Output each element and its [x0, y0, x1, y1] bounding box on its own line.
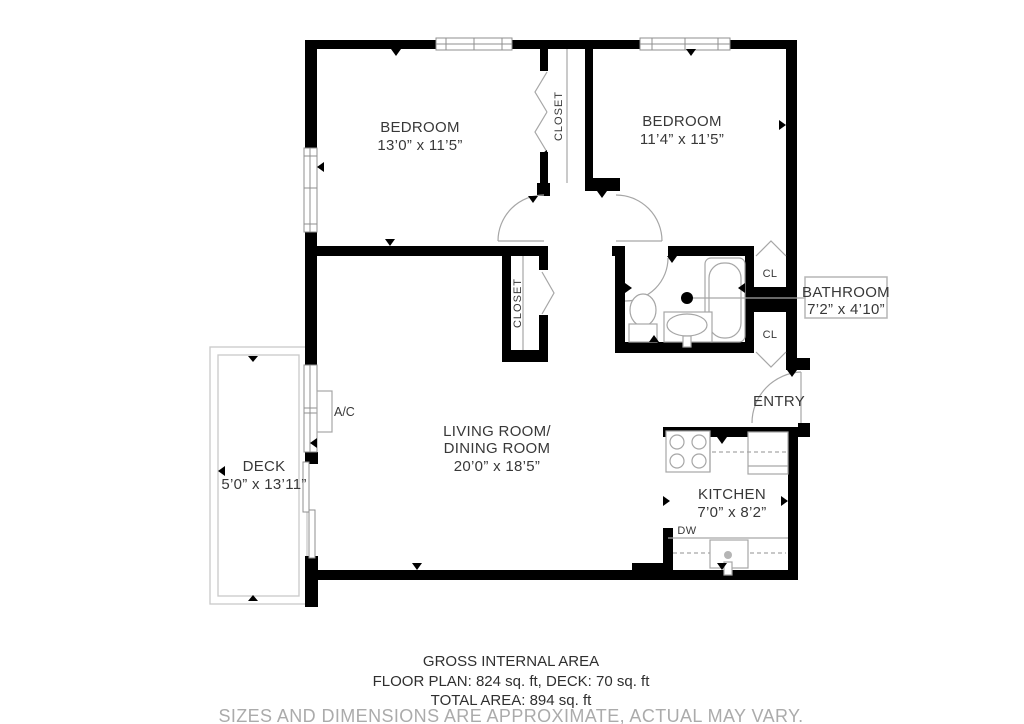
dishwasher-label: DW	[677, 525, 696, 537]
footer-areas: FLOOR PLAN: 824 sq. ft, DECK: 70 sq. ft	[373, 673, 651, 690]
wall-segment	[502, 256, 511, 362]
wall-segment	[585, 178, 620, 191]
bifold-door-icon	[756, 241, 786, 256]
bifold-door-icon	[535, 72, 547, 112]
wall-segment	[788, 427, 798, 580]
kitchen-sink-icon	[710, 540, 748, 575]
wall-marker	[248, 356, 258, 362]
wall-segment	[632, 563, 663, 575]
footer: GROSS INTERNAL AREA FLOOR PLAN: 824 sq. …	[218, 653, 803, 724]
kitchen-name-label: KITCHEN	[698, 486, 766, 503]
door-swing-icon	[616, 195, 662, 241]
wall-segment	[748, 287, 789, 312]
floor-plan-drawing: BEDROOM 13’0” x 11’5” BEDROOM 11’4” x 11…	[0, 0, 1024, 724]
entry-label: ENTRY	[753, 393, 805, 410]
toilet-icon	[629, 294, 657, 342]
cl-top-label: CL	[763, 268, 778, 280]
wall-marker	[412, 563, 422, 570]
kitchen-dims-label: 7’0” x 8’2”	[697, 504, 766, 521]
wall-marker	[781, 496, 788, 506]
closet1-label: CLOSET	[553, 91, 565, 141]
deck-name-label: DECK	[243, 458, 286, 475]
wall-segment	[663, 528, 673, 580]
bathroom-dims-label: 7’2” x 4’10”	[807, 301, 885, 318]
floor-plan-page: BEDROOM 13’0” x 11’5” BEDROOM 11’4” x 11…	[0, 0, 1024, 724]
fridge-icon	[748, 432, 788, 474]
wall-segment	[305, 556, 318, 607]
wall-marker	[625, 283, 632, 293]
deck-dims-label: 5’0” x 13’11”	[221, 476, 306, 493]
footer-heading: GROSS INTERNAL AREA	[423, 653, 599, 670]
wall-segment	[786, 358, 810, 370]
bifold-door-icon	[535, 112, 547, 152]
wall-marker	[663, 496, 670, 506]
bifold-door-icon	[542, 272, 554, 314]
ac-unit-icon	[317, 391, 332, 432]
living-room-dims-label: 20’0” x 18’5”	[454, 458, 540, 475]
wall-segment	[668, 246, 754, 256]
wall-marker	[597, 191, 607, 198]
bedroom2-name-label: BEDROOM	[642, 113, 722, 130]
window-icon	[304, 148, 317, 232]
bedroom2-dims-label: 11’4” x 11’5”	[640, 131, 724, 148]
wall-marker	[391, 49, 401, 56]
wall-marker	[717, 437, 727, 444]
wall-segment	[305, 246, 548, 256]
wall-marker	[779, 120, 786, 130]
bedroom1-name-label: BEDROOM	[380, 119, 460, 136]
wall-marker	[686, 49, 696, 56]
wall-marker	[317, 162, 324, 172]
footer-disclaimer: SIZES AND DIMENSIONS ARE APPROXIMATE, AC…	[218, 706, 803, 724]
wall-segment	[539, 315, 548, 352]
sink-icon	[664, 312, 712, 347]
window-icon	[304, 365, 317, 452]
wall-segment	[537, 183, 550, 196]
bedroom1-dims-label: 13’0” x 11’5”	[377, 137, 462, 154]
living-room-label-line2: DINING ROOM	[444, 440, 551, 457]
wall-marker	[218, 466, 225, 476]
wall-segment	[305, 40, 317, 148]
window-icon	[436, 38, 512, 50]
wall-segment	[615, 246, 625, 353]
wall-marker	[528, 196, 538, 203]
bathroom-leader-dot	[681, 292, 693, 304]
wall-segment	[540, 49, 548, 71]
ac-label: A/C	[334, 405, 355, 419]
wall-segment	[539, 256, 548, 270]
door-swing-icon	[498, 195, 544, 241]
bathroom-name-label: BATHROOM	[802, 284, 890, 301]
window-icon	[640, 38, 730, 50]
wall-marker	[385, 239, 395, 246]
closet2-label: CLOSET	[512, 278, 524, 328]
kitchen-fixtures	[666, 431, 788, 575]
stove-icon	[666, 431, 710, 472]
bifold-door-icon	[756, 352, 786, 367]
faucet-dot	[724, 551, 732, 559]
cl-bottom-label: CL	[763, 329, 778, 341]
living-room-label-line1: LIVING ROOM/	[443, 423, 551, 440]
wall-segment	[585, 49, 593, 178]
